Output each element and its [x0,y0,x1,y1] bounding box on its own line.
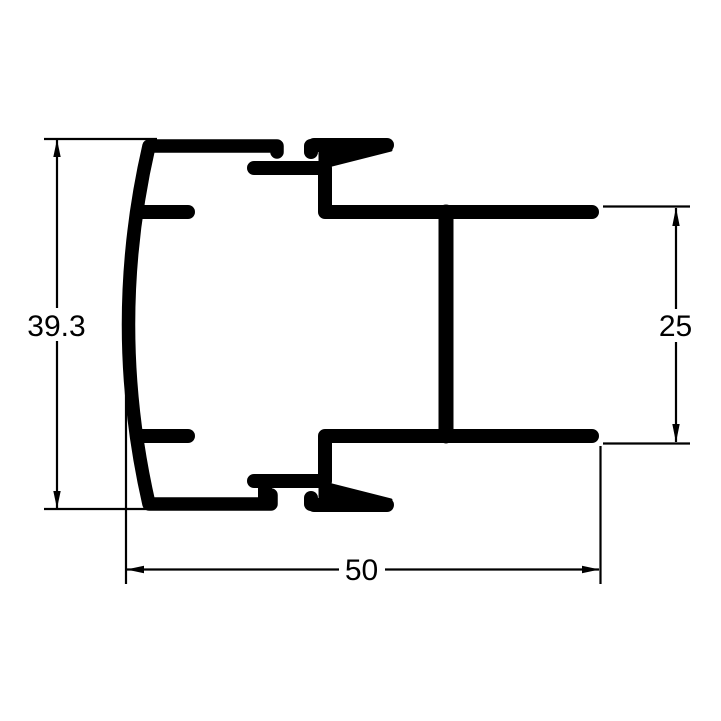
technical-drawing-canvas: 39.3 25 50 [0,0,721,721]
dimension-label-overall-height: 39.3 [27,310,85,343]
arrowhead-right-icon [582,566,600,573]
profile-curved-face-and-caps [129,146,278,504]
arrowhead-left-icon [127,566,145,573]
profile-lower-flange [254,436,592,481]
profile-upper-flange [254,168,592,212]
profile-outline [129,145,593,505]
profile-drawing-svg: 39.3 25 50 [0,0,721,721]
dimension-label-overall-width: 50 [345,554,378,587]
dimension-channel-height: 25 [603,207,697,444]
dimension-overall-width: 50 [126,368,601,587]
arrowhead-up-icon [53,140,60,158]
profile-bottom-wedge [320,482,391,500]
arrowhead-down-icon [53,491,60,509]
dimension-label-channel-height: 25 [659,310,692,343]
arrowhead-up-icon [672,208,679,227]
arrowhead-down-icon [672,424,679,443]
profile-top-wedge [320,150,391,168]
